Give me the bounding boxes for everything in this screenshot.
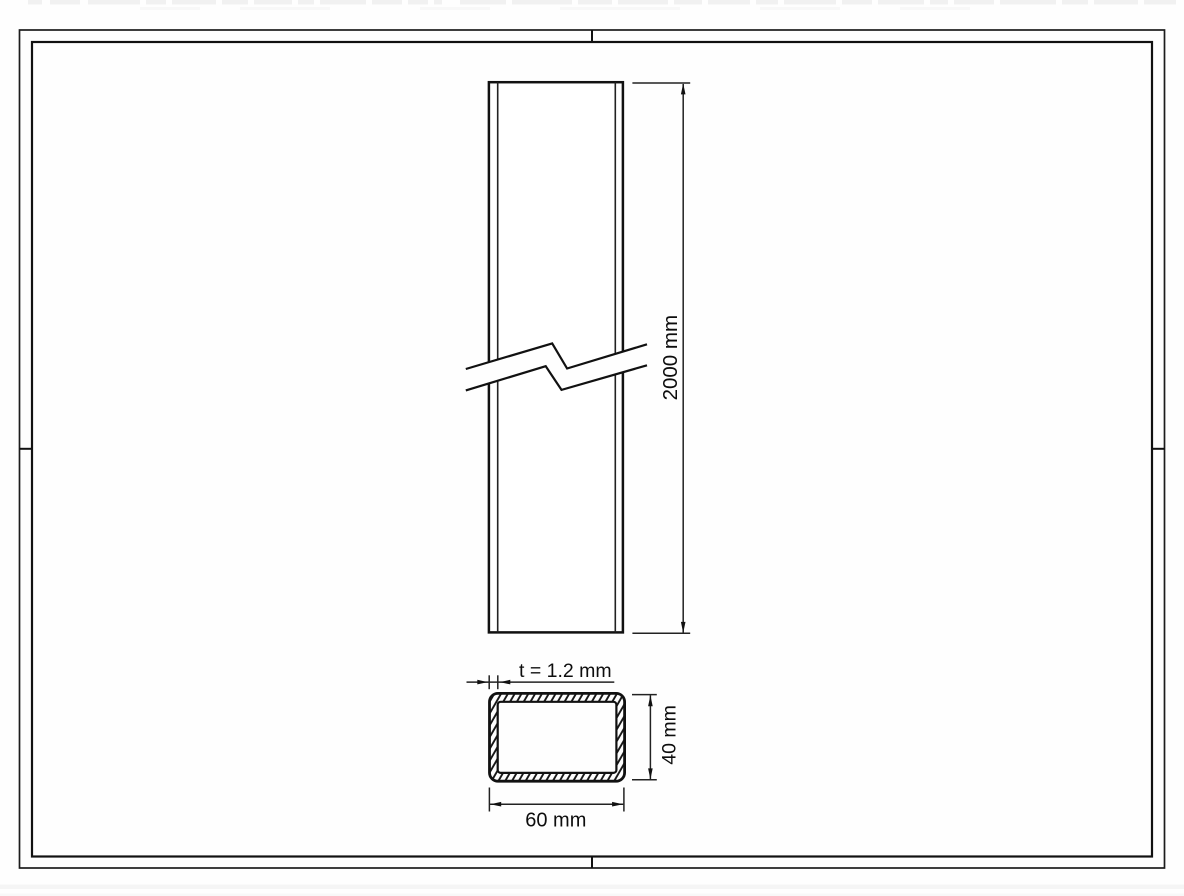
svg-text:t = 1.2 mm: t = 1.2 mm — [519, 660, 612, 682]
svg-text:60 mm: 60 mm — [525, 809, 586, 831]
svg-text:40 mm: 40 mm — [658, 705, 680, 765]
svg-text:2000 mm: 2000 mm — [659, 315, 682, 400]
